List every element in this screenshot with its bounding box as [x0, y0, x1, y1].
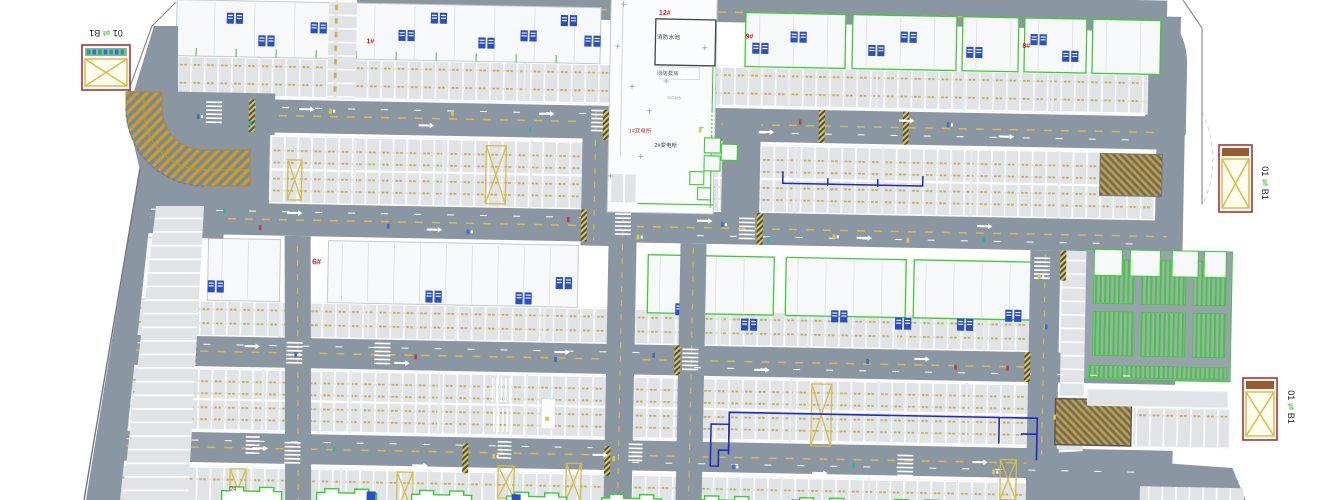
svg-text:12#: 12#: [659, 10, 671, 17]
svg-text:01 ⇌ B1: 01 ⇌ B1: [1286, 390, 1296, 424]
svg-text:24: 24: [230, 487, 237, 493]
svg-text:01 ⇌ B1: 01 ⇌ B1: [1260, 166, 1270, 200]
svg-text:1#: 1#: [366, 38, 374, 45]
svg-text:6#: 6#: [312, 257, 322, 266]
svg-text:533365: 533365: [667, 95, 681, 100]
svg-text:9#: 9#: [745, 34, 753, 41]
svg-text:01 ⇌ B1: 01 ⇌ B1: [89, 28, 123, 38]
svg-text:8#: 8#: [1022, 43, 1030, 50]
